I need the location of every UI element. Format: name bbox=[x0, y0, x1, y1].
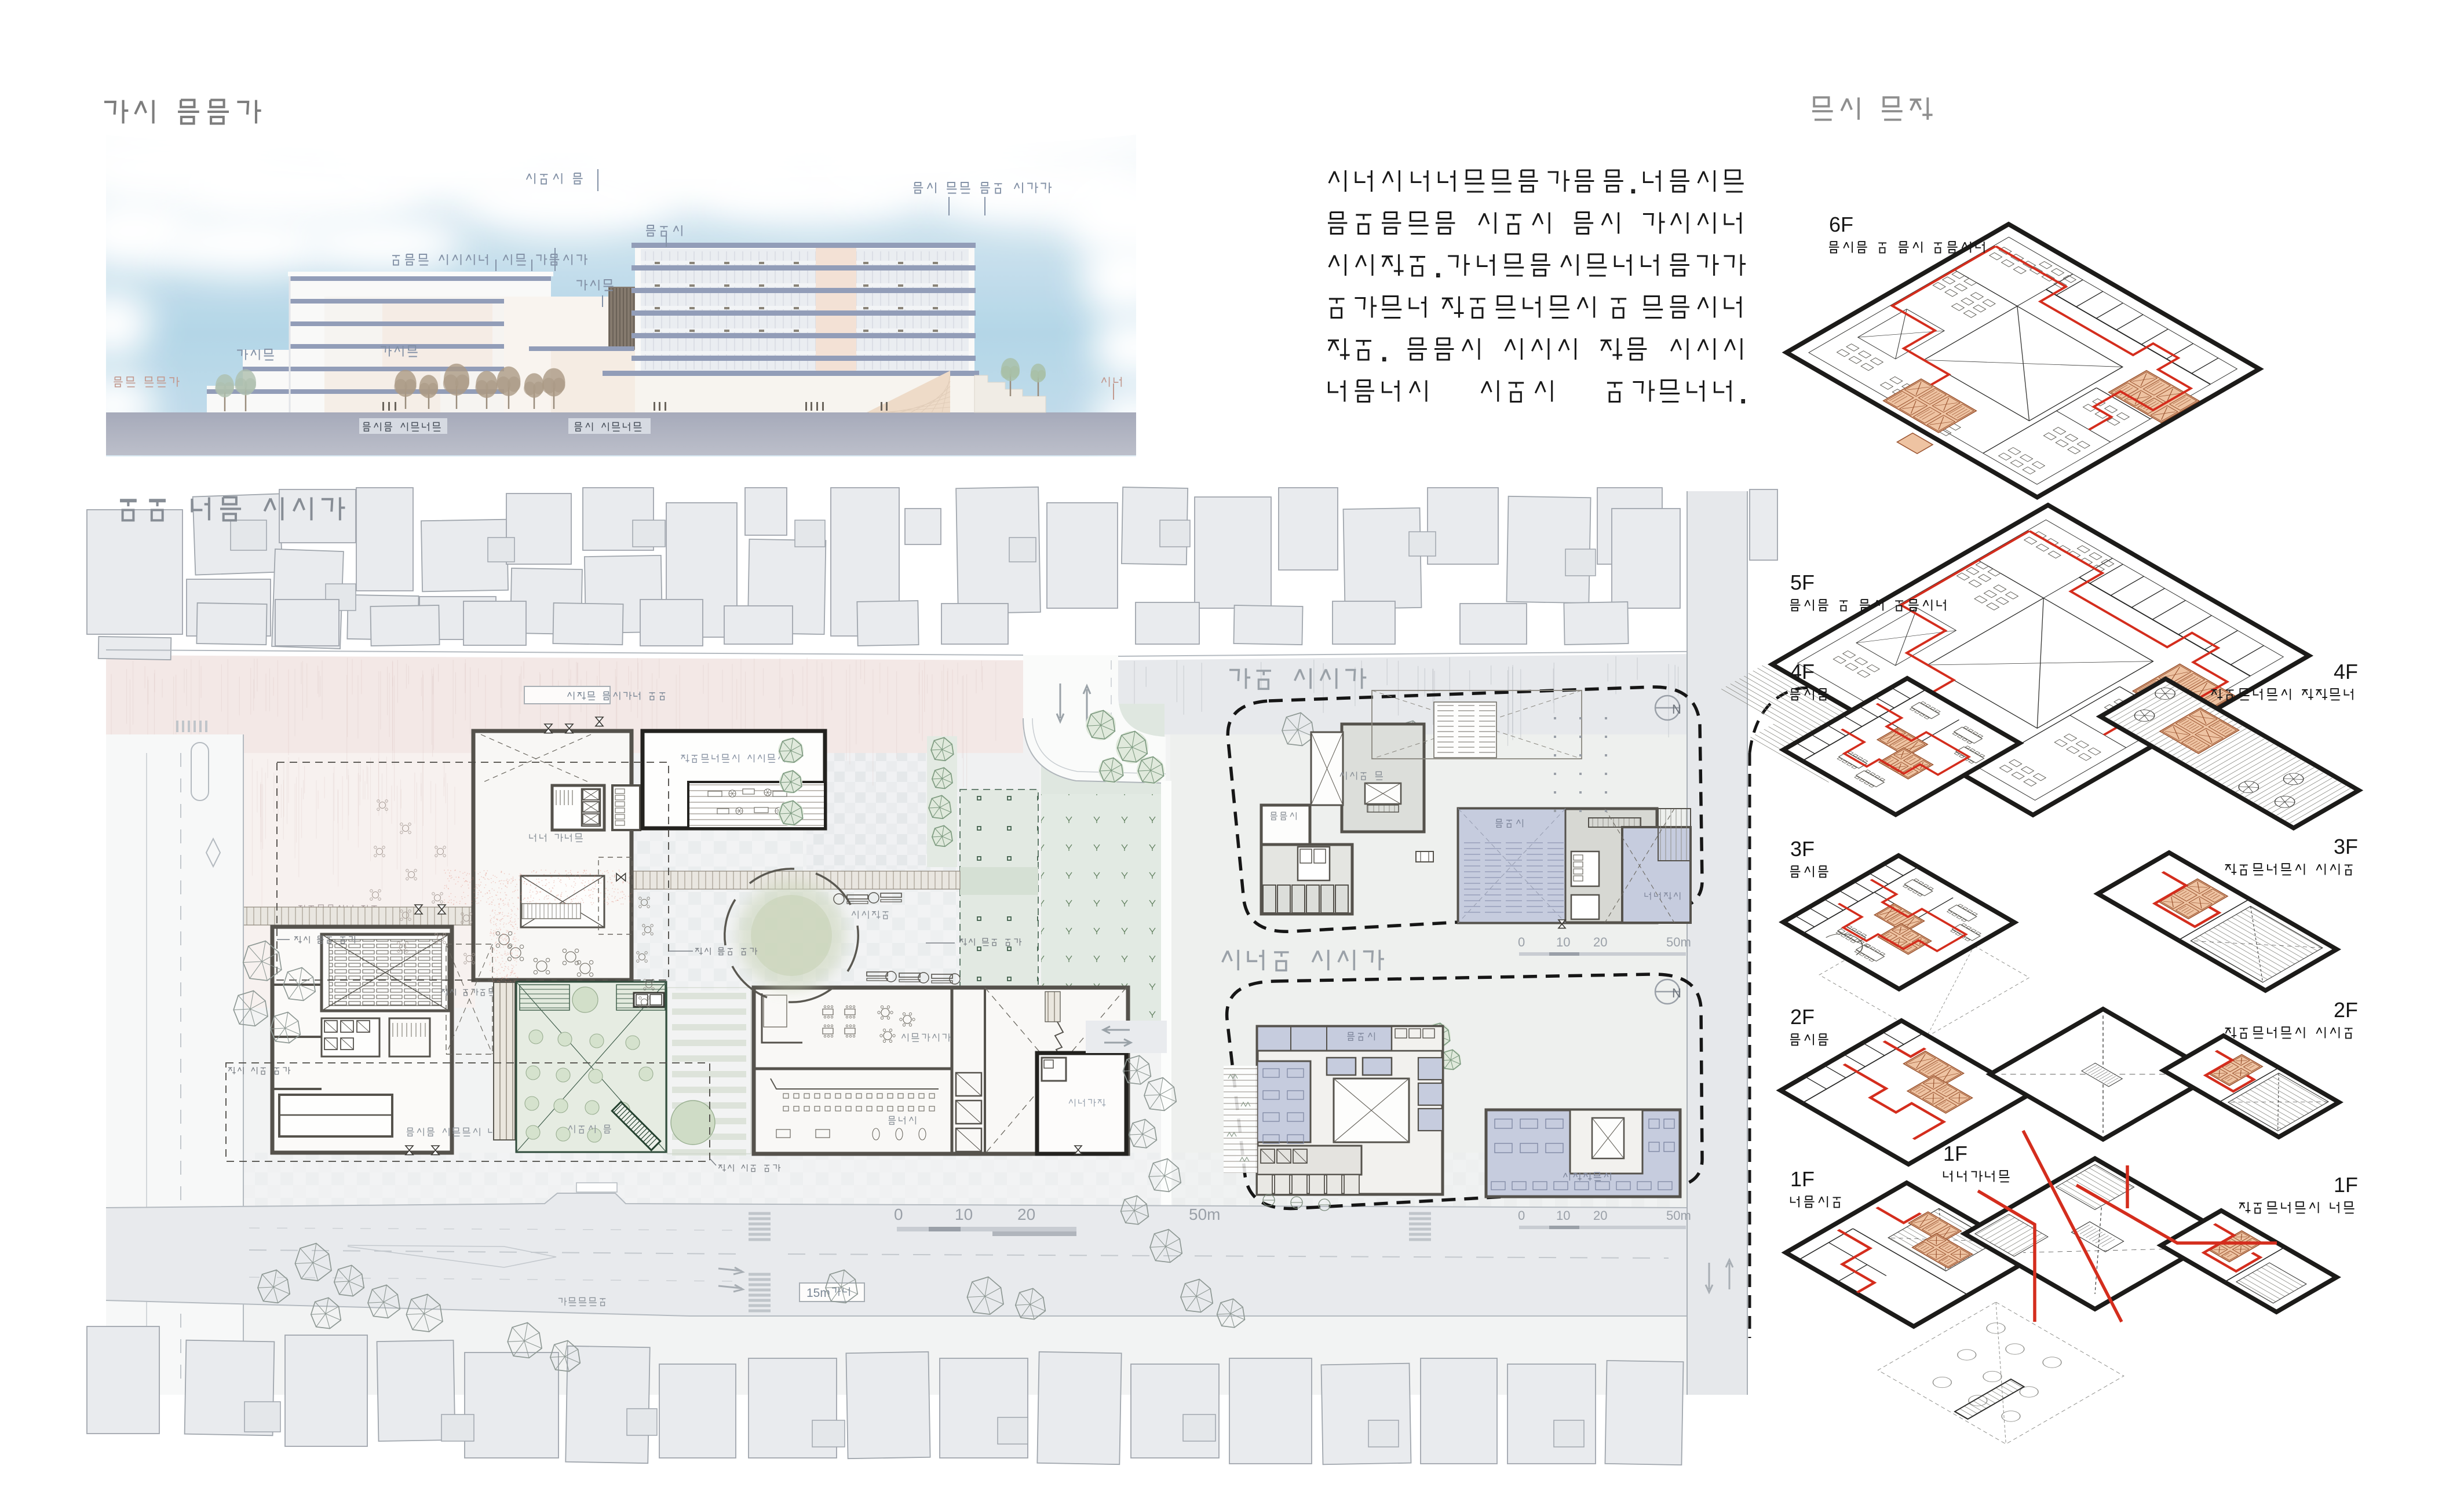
svg-text:15m: 15m bbox=[806, 1286, 830, 1300]
svg-text:20: 20 bbox=[1593, 1208, 1607, 1223]
svg-text:N: N bbox=[1672, 986, 1681, 1000]
svg-text:50m: 50m bbox=[1189, 1205, 1220, 1223]
svg-text:6F: 6F bbox=[1829, 213, 1853, 236]
svg-text:0: 0 bbox=[894, 1205, 903, 1223]
svg-text:50m: 50m bbox=[1666, 1208, 1691, 1223]
svg-text:10: 10 bbox=[1556, 935, 1570, 949]
svg-text:1F: 1F bbox=[1790, 1167, 1815, 1191]
svg-text:0: 0 bbox=[1518, 1208, 1525, 1223]
svg-text:1F: 1F bbox=[1943, 1142, 1967, 1165]
svg-text:0: 0 bbox=[1518, 935, 1525, 949]
svg-text:2F: 2F bbox=[1790, 1005, 1815, 1029]
svg-text:5F: 5F bbox=[1790, 571, 1815, 594]
svg-text:N: N bbox=[1672, 702, 1681, 717]
svg-text:4F: 4F bbox=[1790, 660, 1815, 683]
svg-text:3F: 3F bbox=[1790, 837, 1815, 861]
svg-text:10: 10 bbox=[1556, 1208, 1570, 1223]
svg-text:4F: 4F bbox=[2334, 660, 2358, 683]
svg-text:1F: 1F bbox=[2334, 1173, 2358, 1197]
svg-text:50m: 50m bbox=[1666, 935, 1691, 949]
svg-text:20: 20 bbox=[1593, 935, 1607, 949]
svg-text:3F: 3F bbox=[2334, 835, 2358, 858]
svg-text:20: 20 bbox=[1017, 1205, 1035, 1223]
svg-text:2F: 2F bbox=[2334, 998, 2358, 1022]
svg-text:10: 10 bbox=[955, 1205, 973, 1223]
